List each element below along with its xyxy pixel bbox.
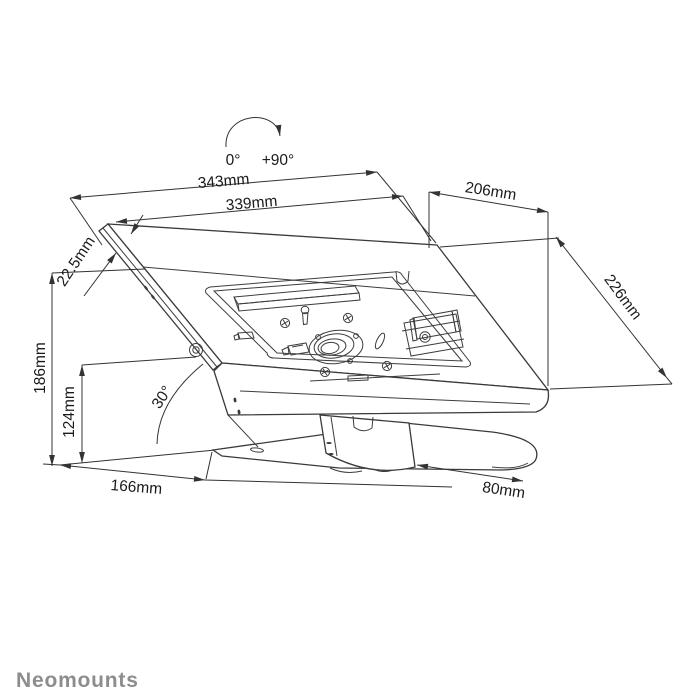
dim-line-226 bbox=[556, 237, 667, 378]
rotation-start-label: 0° bbox=[226, 152, 241, 169]
tablet-enclosure bbox=[99, 224, 549, 447]
dim-line-22-5-a bbox=[84, 253, 116, 296]
dim-label-186: 186mm bbox=[32, 342, 49, 394]
dim-label-206: 206mm bbox=[464, 179, 518, 204]
dim-label-22-5: 22.5mm bbox=[54, 233, 99, 289]
rotation-indicator: 0° +90° bbox=[226, 118, 295, 169]
dim-label-226: 226mm bbox=[600, 271, 644, 323]
tablet-stand-dimension-drawing: 343mm 339mm 206mm 226mm 22.5mm 186mm 124… bbox=[0, 0, 700, 700]
dim-label-339: 339mm bbox=[225, 193, 278, 214]
dim-label-80: 80mm bbox=[481, 479, 526, 502]
technical-drawing-page: 343mm 339mm 206mm 226mm 22.5mm 186mm 124… bbox=[0, 0, 700, 700]
dim-label-30deg: 30° bbox=[149, 383, 176, 412]
dim-label-166: 166mm bbox=[110, 477, 163, 498]
brand-logo: Neomounts bbox=[16, 669, 139, 692]
rotation-end-label: +90° bbox=[262, 152, 295, 169]
rotation-arc bbox=[226, 118, 280, 147]
dim-label-124: 124mm bbox=[61, 386, 78, 438]
dim-label-343: 343mm bbox=[197, 171, 250, 192]
